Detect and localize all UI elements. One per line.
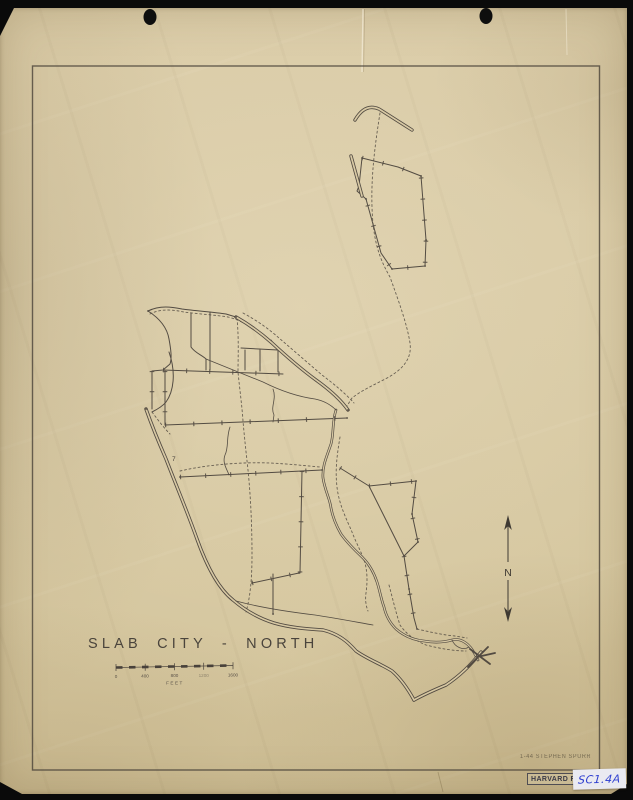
map-title: SLAB CITY - NORTH (88, 636, 318, 652)
north-arrow: N (504, 515, 512, 622)
stream-line (323, 410, 478, 660)
credit-line: 1-44 STEPHEN SPURR (520, 754, 591, 760)
scale-unit-label: FEET (166, 681, 184, 686)
scale-tick-1200: 1200 (199, 673, 210, 678)
paper-creases (362, 9, 567, 792)
scale-tick-0: 0 (115, 674, 118, 679)
north-label: N (504, 567, 512, 579)
catalog-number: SC1.4A (578, 772, 622, 786)
punch-hole (480, 8, 493, 24)
road-junction (468, 647, 495, 667)
compartment-label: 7 (172, 456, 176, 463)
station-dots (146, 158, 426, 629)
scale-bar: 0 400 800 1200 1600 FEET (115, 662, 239, 685)
minor-lines (206, 359, 469, 649)
scale-tick-800: 800 (171, 673, 179, 678)
scale-tick-1600: 1600 (228, 672, 239, 677)
trail-lines (150, 113, 467, 651)
scanned-map-sheet: 7 N 0 400 800 1200 1600 FEET SLAB CITY -… (0, 0, 633, 800)
frame-border (33, 66, 600, 770)
survey-boundary-lines (148, 158, 426, 629)
road-lines (146, 107, 481, 700)
catalog-sticker: SC1.4A (573, 768, 627, 789)
map-drawing: 7 N 0 400 800 1200 1600 FEET (0, 0, 633, 800)
scale-tick-400: 400 (141, 674, 149, 679)
punch-hole (144, 9, 157, 25)
survey-tick-marks (152, 158, 426, 618)
